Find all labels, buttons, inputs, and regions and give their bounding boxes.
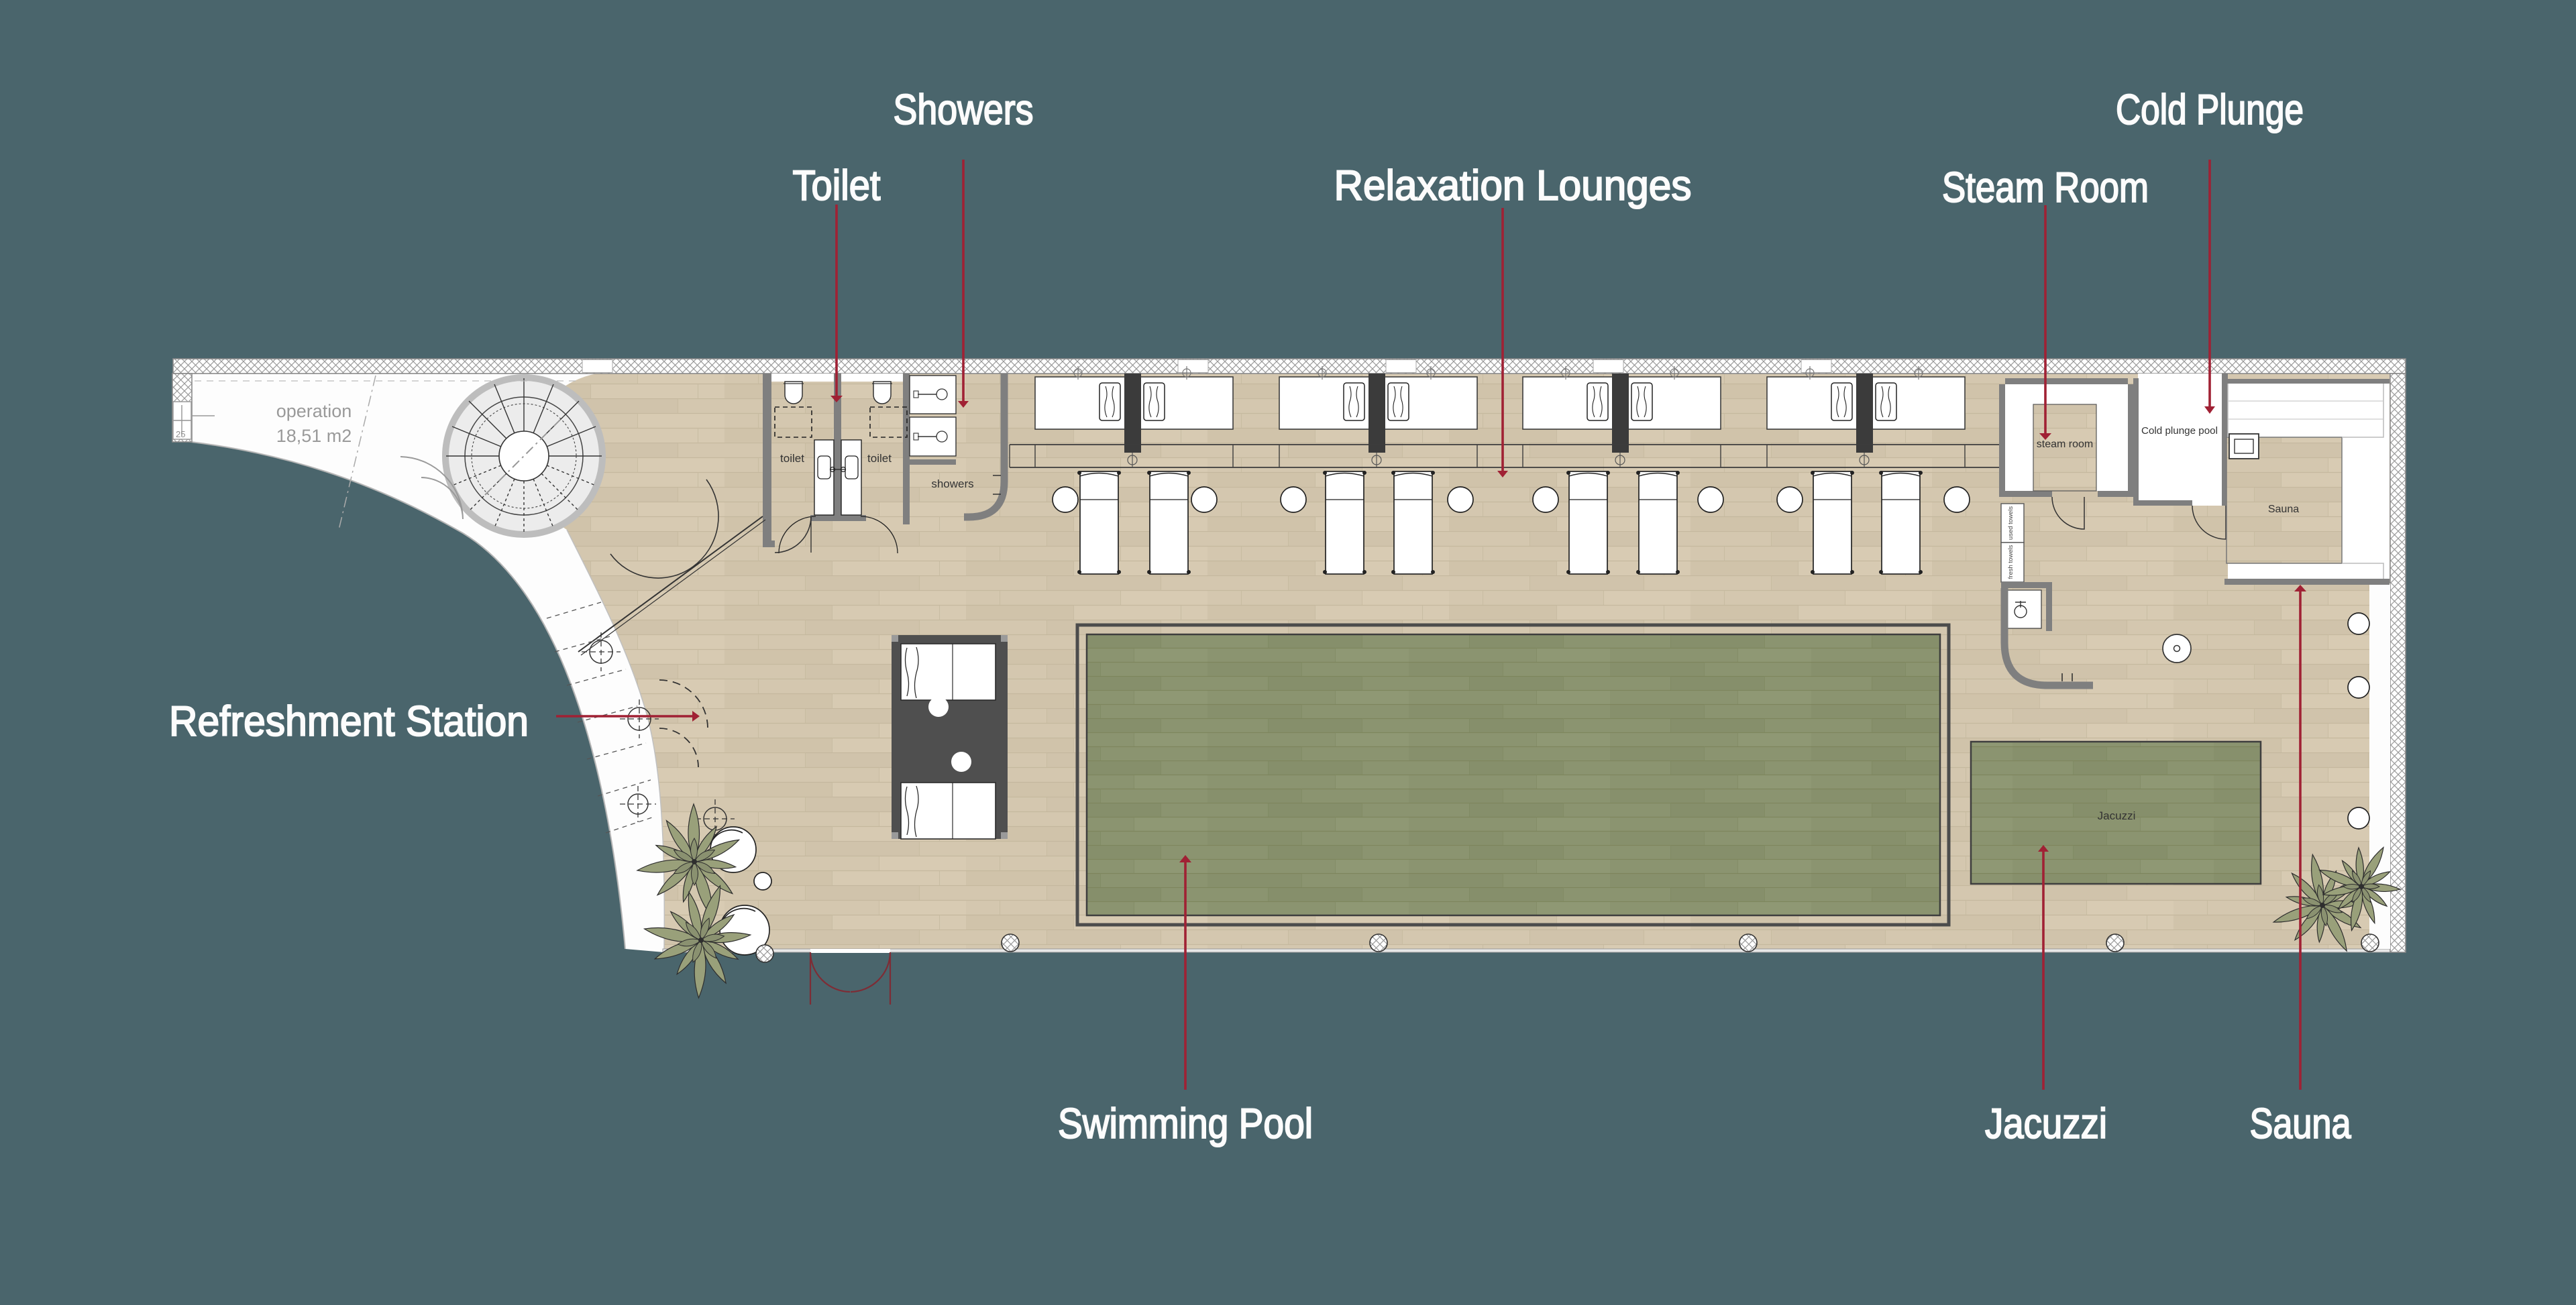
svg-text:Jacuzzi: Jacuzzi	[1985, 1100, 2107, 1147]
svg-text:Cold Plunge: Cold Plunge	[2116, 87, 2304, 133]
svg-text:18,51 m2: 18,51 m2	[276, 426, 352, 446]
svg-text:Jacuzzi: Jacuzzi	[2098, 809, 2136, 822]
svg-text:Cold plunge pool: Cold plunge pool	[2141, 426, 2218, 437]
svg-text:showers: showers	[931, 477, 973, 490]
svg-text:Sauna: Sauna	[2250, 1100, 2352, 1147]
svg-text:used towels: used towels	[2007, 506, 2015, 540]
svg-text:toilet: toilet	[780, 452, 804, 465]
svg-text:steam room: steam room	[2037, 439, 2093, 450]
svg-text:Swimming Pool: Swimming Pool	[1058, 1100, 1313, 1147]
svg-text:Sauna: Sauna	[2268, 504, 2299, 515]
svg-text:Refreshment Station: Refreshment Station	[169, 698, 529, 745]
svg-text:Steam Room: Steam Room	[1942, 164, 2149, 211]
svg-text:Showers: Showers	[894, 87, 1034, 133]
svg-text:Toilet: Toilet	[793, 162, 881, 209]
svg-text:Relaxation Lounges: Relaxation Lounges	[1334, 162, 1692, 209]
svg-text:25: 25	[176, 429, 185, 439]
svg-text:toilet: toilet	[867, 452, 892, 465]
svg-text:operation: operation	[276, 401, 352, 421]
svg-text:fresh towels: fresh towels	[2007, 545, 2015, 579]
